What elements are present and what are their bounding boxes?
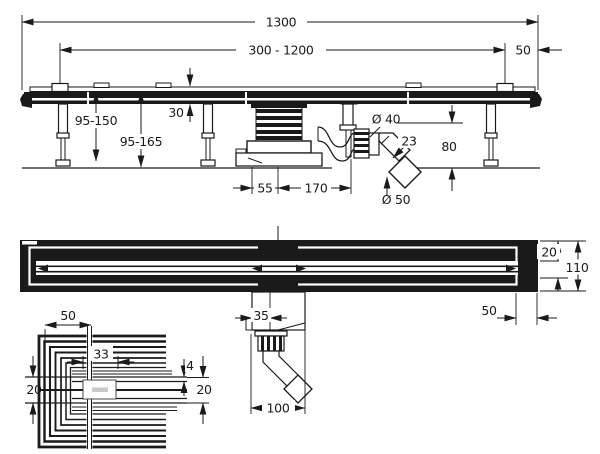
side-view: 1300 300 - 1200 50 — [20, 14, 562, 207]
dim-label-50-top: 50 — [515, 43, 531, 58]
dim-label-1300: 1300 — [266, 15, 297, 30]
adjustable-leg — [56, 104, 70, 166]
plan-outlet: 35 100 — [235, 292, 312, 416]
end-bracket — [52, 84, 68, 92]
dim-label-35: 35 — [253, 308, 268, 323]
trap-tray — [236, 153, 322, 166]
end-cap-left — [20, 92, 32, 108]
dim-label-4: 4 — [186, 358, 194, 373]
dim-label-100: 100 — [267, 401, 290, 416]
brand-mark — [92, 388, 108, 393]
dim-end-distance: 50 — [515, 43, 562, 58]
dim-label-20-right: 20 — [196, 382, 212, 397]
dim-label-95-165: 95-165 — [120, 134, 162, 149]
shower-channel-drawing: 1300 300 - 1200 50 — [0, 0, 600, 454]
pipe-end-cap — [389, 156, 421, 188]
dim-label-dia50: Ø 50 — [382, 192, 411, 207]
end-bracket — [497, 84, 513, 92]
dim-label-170: 170 — [305, 181, 328, 196]
dim-label-33: 33 — [93, 347, 108, 362]
technical-drawing-page: 1300 300 - 1200 50 — [0, 0, 600, 454]
dim-label-50-plan: 50 — [481, 303, 497, 318]
dim-label-95-150: 95-150 — [75, 113, 118, 128]
end-cap-right — [530, 92, 542, 108]
siphon — [236, 104, 322, 166]
dim-label-30: 30 — [168, 105, 184, 120]
dim-plan-right: 20 110 — [537, 241, 595, 291]
dim-label-dia40: Ø 40 — [372, 112, 401, 127]
dim-label-55: 55 — [257, 181, 272, 196]
dim-overall-length: 1300 — [22, 14, 538, 30]
dim-adjustable-range: 300 - 1200 — [60, 42, 505, 58]
adjustable-leg — [201, 104, 215, 166]
trap-body — [247, 141, 311, 153]
adjustable-leg — [484, 104, 498, 166]
dim-label-20-left: 20 — [26, 382, 42, 397]
dim-plan-endcap-50: 50 — [481, 293, 557, 325]
dim-label-110: 110 — [566, 260, 589, 275]
dim-label-50-detail: 50 — [60, 308, 76, 323]
dim-label-80: 80 — [441, 139, 457, 154]
dim-label-23: 23 — [401, 134, 416, 149]
dim-label-20-plan: 20 — [541, 245, 557, 260]
corner-detail: 50 33 20 4 20 — [25, 308, 215, 449]
dim-label-300-1200: 300 - 1200 — [248, 43, 313, 58]
